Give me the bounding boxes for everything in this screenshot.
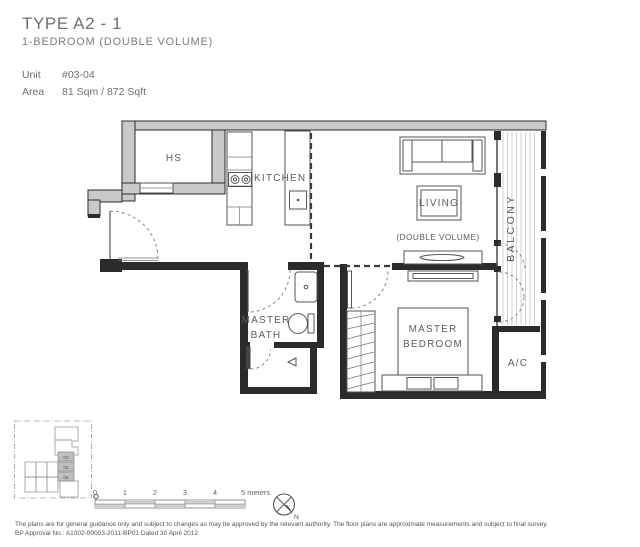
shower-head-icon bbox=[288, 358, 296, 366]
scale-tick-2: 2 bbox=[153, 488, 157, 497]
bedroom-door-arc bbox=[352, 271, 389, 308]
label-kitchen: KITCHEN bbox=[254, 173, 306, 184]
keyplan-unit-03: 03 bbox=[63, 455, 69, 461]
wardrobe-icon bbox=[347, 311, 375, 392]
bedroom-console-icon bbox=[408, 271, 478, 281]
scale-tick-3: 3 bbox=[183, 488, 187, 497]
room-hs bbox=[140, 183, 173, 193]
label-hs: HS bbox=[166, 153, 182, 164]
balcony-railing bbox=[541, 131, 546, 399]
key-plan: 03 04 05 bbox=[15, 421, 99, 499]
bath-door-arc bbox=[248, 270, 290, 312]
scale-tick-1: 1 bbox=[123, 488, 127, 497]
basin-icon bbox=[295, 272, 317, 302]
north-compass-icon: N bbox=[274, 494, 300, 521]
label-master-bedroom-2: BEDROOM bbox=[403, 339, 463, 350]
disclaimer: The plans are for general guidance only … bbox=[15, 520, 630, 538]
scale-bar: 0 1 2 3 4 5 meters bbox=[93, 488, 271, 508]
label-master-bath-1: MASTER bbox=[242, 315, 291, 326]
disclaimer-line1: The plans are for general guidance only … bbox=[15, 520, 630, 529]
scale-tick-0: 0 bbox=[93, 488, 97, 497]
bedroom-door-leaf bbox=[348, 271, 352, 308]
label-master-bath-2: BATH bbox=[251, 330, 282, 341]
scale-tick-4: 4 bbox=[213, 488, 217, 497]
keyplan-unit-04: 04 bbox=[63, 465, 69, 471]
label-ac: A/C bbox=[508, 358, 528, 369]
label-double-volume: (DOUBLE VOLUME) bbox=[397, 232, 480, 242]
disclaimer-line2: BP Approval No.: A1002-00003-2011-BP01 D… bbox=[15, 529, 630, 538]
entry-door bbox=[110, 211, 158, 261]
floorplan-page: TYPE A2 - 1 1-BEDROOM (DOUBLE VOLUME) Un… bbox=[0, 0, 640, 547]
label-master-bedroom-1: MASTER bbox=[409, 324, 458, 335]
label-living: LIVING bbox=[419, 198, 459, 209]
shower-door-leaf bbox=[246, 346, 251, 369]
floor-plan-drawing: HS KITCHEN LIVING (DOUBLE VOLUME) BALCON… bbox=[0, 0, 640, 547]
bedroom-furniture bbox=[324, 266, 482, 392]
kitchen-fixtures bbox=[227, 131, 311, 262]
toilet-icon bbox=[289, 314, 315, 334]
shower-door-arc bbox=[251, 349, 271, 369]
keyplan-unit-05: 05 bbox=[63, 475, 69, 481]
tv-console-icon bbox=[404, 251, 482, 264]
label-balcony: BALCONY bbox=[505, 194, 517, 262]
scale-end-label: 5 meters bbox=[241, 488, 270, 497]
